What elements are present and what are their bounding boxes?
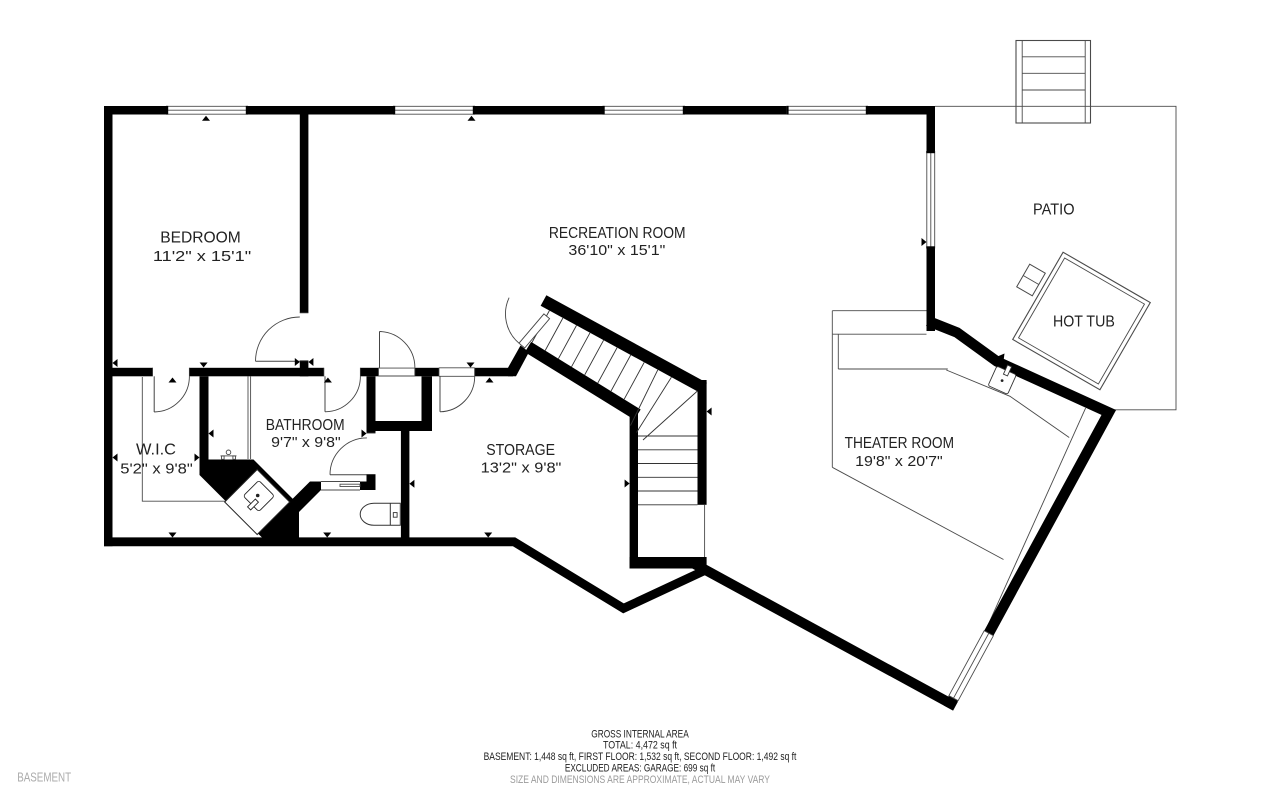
svg-text:PATIO: PATIO [1033, 202, 1075, 219]
svg-text:RECREATION ROOM: RECREATION ROOM [549, 225, 686, 242]
svg-text:BASEMENT: 1,448 sq ft, FIRST F: BASEMENT: 1,448 sq ft, FIRST FLOOR: 1,53… [484, 751, 797, 763]
svg-text:BASEMENT: BASEMENT [17, 769, 71, 784]
svg-text:19'8" x 20'7": 19'8" x 20'7" [855, 453, 943, 470]
svg-text:5'2" x 9'8": 5'2" x 9'8" [120, 461, 193, 478]
svg-text:THEATER ROOM: THEATER ROOM [845, 435, 954, 452]
svg-text:BEDROOM: BEDROOM [160, 229, 241, 246]
svg-text:EXCLUDED AREAS: GARAGE: 699 sq: EXCLUDED AREAS: GARAGE: 699 sq ft [565, 763, 716, 775]
svg-text:HOT TUB: HOT TUB [1053, 314, 1115, 331]
svg-text:BATHROOM: BATHROOM [266, 417, 345, 434]
svg-text:36'10" x 15'1": 36'10" x 15'1" [568, 242, 665, 259]
svg-text:W.I.C: W.I.C [136, 441, 176, 458]
svg-text:TOTAL: 4,472 sq ft: TOTAL: 4,472 sq ft [603, 740, 678, 752]
svg-text:9'7" x 9'8": 9'7" x 9'8" [271, 434, 341, 451]
svg-text:11'2" x 15'1": 11'2" x 15'1" [153, 248, 251, 265]
svg-text:13'2" x 9'8": 13'2" x 9'8" [481, 459, 562, 476]
svg-text:STORAGE: STORAGE [486, 442, 555, 459]
svg-text:GROSS INTERNAL AREA: GROSS INTERNAL AREA [591, 728, 689, 740]
svg-text:SIZE AND DIMENSIONS ARE APPROX: SIZE AND DIMENSIONS ARE APPROXIMATE, ACT… [510, 774, 770, 786]
